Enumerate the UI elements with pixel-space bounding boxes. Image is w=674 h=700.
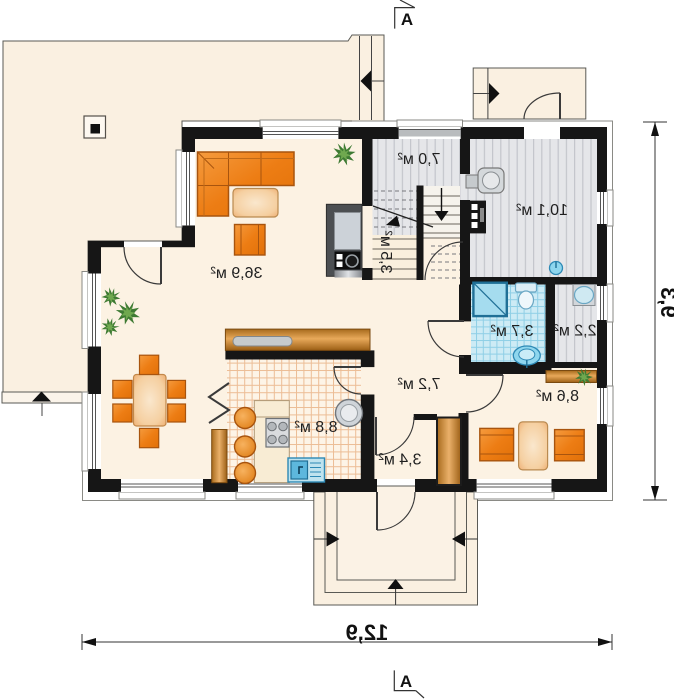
svg-text:7,0 м²: 7,0 м² bbox=[397, 151, 441, 168]
svg-text:A: A bbox=[401, 10, 413, 29]
svg-text:9,3: 9,3 bbox=[656, 287, 674, 318]
svg-text:7,2 м²: 7,2 м² bbox=[397, 376, 441, 393]
svg-text:8,6 м²: 8,6 м² bbox=[535, 388, 579, 405]
svg-text:2,2 м²: 2,2 м² bbox=[553, 323, 597, 340]
svg-text:10,1 м²: 10,1 м² bbox=[515, 202, 568, 219]
svg-text:A: A bbox=[400, 672, 412, 691]
svg-text:3,7 м²: 3,7 м² bbox=[490, 323, 534, 340]
svg-text:3,5 м²: 3,5 м² bbox=[377, 230, 394, 274]
svg-text:12,9: 12,9 bbox=[346, 620, 389, 645]
svg-text:36,9 м²: 36,9 м² bbox=[210, 265, 263, 282]
svg-text:8,8 м²: 8,8 м² bbox=[294, 419, 338, 436]
svg-text:3,4 м²: 3,4 м² bbox=[378, 452, 422, 469]
